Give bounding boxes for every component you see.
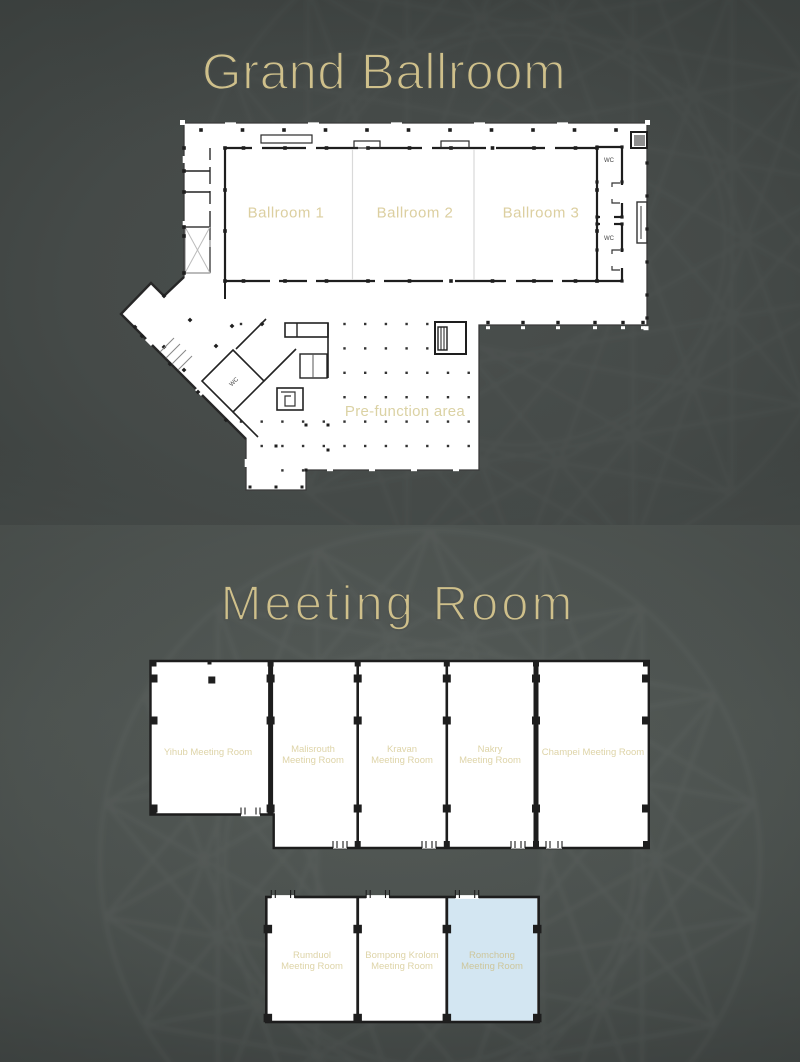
svg-text:WC: WC	[604, 236, 615, 242]
svg-text:Pre-function area: Pre-function area	[345, 403, 466, 420]
svg-text:Champei Meeting Room: Champei Meeting Room	[542, 747, 645, 758]
svg-text:Meeting Room: Meeting Room	[281, 961, 343, 972]
svg-text:Meeting Room: Meeting Room	[459, 755, 521, 766]
svg-text:Grand Ballroom: Grand Ballroom	[202, 43, 566, 100]
svg-text:Ballroom 1: Ballroom 1	[248, 205, 325, 222]
svg-text:Malisrouth: Malisrouth	[291, 744, 335, 755]
svg-text:WC: WC	[604, 158, 615, 164]
svg-text:Rumduol: Rumduol	[293, 950, 331, 961]
svg-text:Yihub Meeting Room: Yihub Meeting Room	[164, 747, 252, 758]
svg-text:Romchong: Romchong	[469, 950, 515, 961]
svg-text:Meeting Room: Meeting Room	[371, 755, 433, 766]
svg-text:Meeting Room: Meeting Room	[461, 961, 523, 972]
svg-text:Meeting Room: Meeting Room	[221, 577, 576, 631]
svg-text:Bompong Krolom: Bompong Krolom	[365, 950, 438, 961]
svg-text:Kravan: Kravan	[387, 744, 417, 755]
svg-text:Meeting Room: Meeting Room	[282, 755, 344, 766]
svg-text:Nakry: Nakry	[478, 744, 503, 755]
svg-text:Ballroom 2: Ballroom 2	[377, 205, 454, 222]
svg-text:Ballroom 3: Ballroom 3	[503, 205, 580, 222]
svg-text:Meeting Room: Meeting Room	[371, 961, 433, 972]
